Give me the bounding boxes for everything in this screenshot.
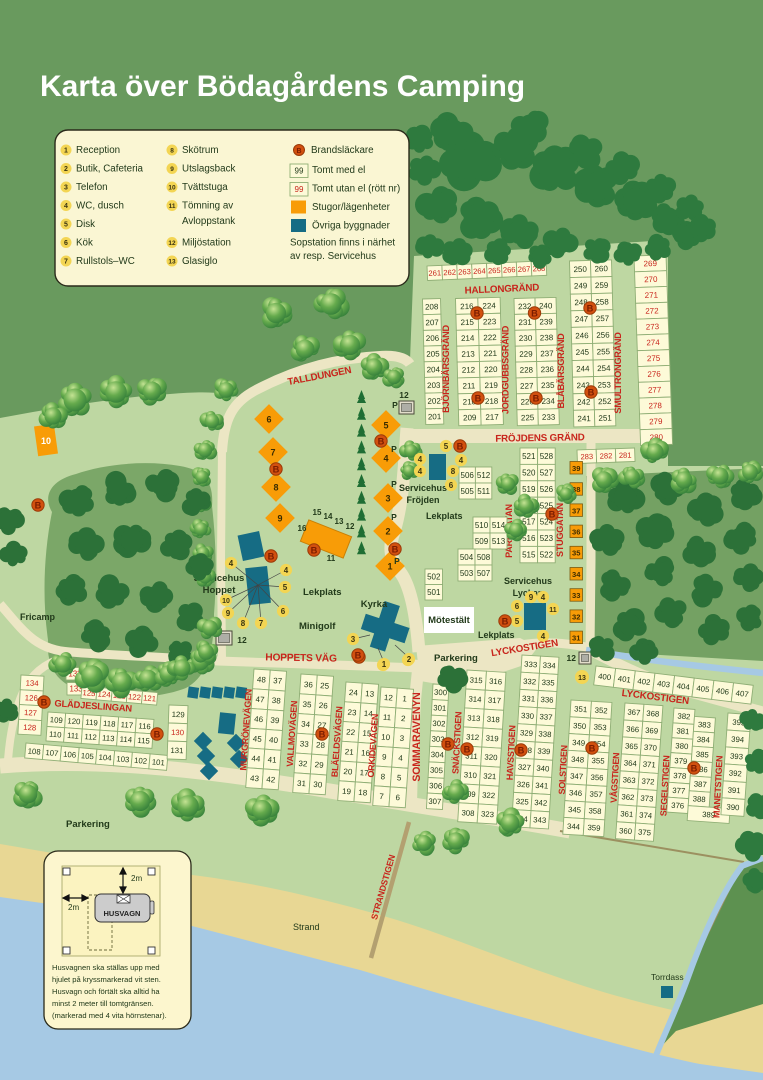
svg-text:10: 10 [41, 436, 51, 446]
svg-text:233: 233 [542, 413, 556, 422]
svg-text:347: 347 [570, 772, 584, 782]
svg-text:99: 99 [295, 167, 304, 176]
svg-text:228: 228 [520, 365, 534, 374]
svg-text:SOMMARAVENYN: SOMMARAVENYN [411, 692, 423, 781]
svg-text:Servicehus: Servicehus [399, 483, 447, 493]
svg-text:32: 32 [298, 759, 308, 769]
svg-text:8: 8 [170, 148, 174, 155]
svg-text:33: 33 [300, 739, 310, 749]
svg-text:313: 313 [467, 713, 481, 723]
svg-text:251: 251 [598, 414, 612, 423]
svg-text:107: 107 [45, 748, 59, 758]
svg-text:511: 511 [477, 487, 490, 496]
svg-text:Avloppstank: Avloppstank [182, 216, 235, 227]
svg-text:372: 372 [641, 777, 655, 787]
svg-text:Stugor/lägenheter: Stugor/lägenheter [312, 202, 391, 213]
svg-text:301: 301 [433, 703, 446, 713]
svg-text:283: 283 [580, 452, 593, 461]
svg-text:131: 131 [170, 746, 183, 755]
svg-text:329: 329 [520, 728, 534, 738]
svg-text:355: 355 [591, 756, 605, 766]
svg-text:5: 5 [444, 442, 449, 451]
svg-text:Minigolf: Minigolf [299, 621, 336, 632]
svg-text:11: 11 [383, 713, 392, 723]
svg-text:371: 371 [642, 760, 656, 770]
svg-text:35: 35 [572, 549, 581, 558]
svg-text:31: 31 [297, 779, 307, 789]
svg-text:401: 401 [617, 674, 631, 685]
svg-text:514: 514 [492, 521, 506, 530]
svg-text:3: 3 [64, 185, 68, 192]
svg-text:336: 336 [540, 695, 554, 705]
svg-text:46: 46 [254, 715, 264, 725]
svg-text:502: 502 [427, 573, 441, 582]
svg-text:323: 323 [481, 809, 495, 819]
svg-text:335: 335 [541, 678, 555, 688]
svg-text:117: 117 [120, 720, 133, 730]
svg-text:229: 229 [519, 350, 533, 359]
svg-text:106: 106 [63, 750, 77, 760]
svg-text:405: 405 [696, 684, 711, 695]
svg-text:240: 240 [539, 301, 553, 310]
svg-text:22: 22 [346, 728, 356, 738]
svg-text:43: 43 [250, 774, 260, 784]
svg-text:37: 37 [273, 676, 283, 686]
svg-text:37: 37 [572, 506, 580, 515]
svg-text:114: 114 [119, 735, 133, 745]
svg-text:B: B [464, 744, 471, 754]
svg-text:220: 220 [484, 365, 498, 374]
svg-text:501: 501 [427, 588, 441, 597]
svg-text:Glasiglo: Glasiglo [182, 256, 218, 267]
svg-text:279: 279 [649, 417, 663, 426]
svg-text:109: 109 [49, 715, 63, 725]
svg-text:270: 270 [644, 275, 658, 284]
svg-text:5: 5 [283, 583, 288, 592]
svg-text:317: 317 [488, 696, 502, 706]
svg-text:6: 6 [281, 607, 286, 616]
svg-text:271: 271 [645, 291, 659, 300]
svg-text:307: 307 [428, 797, 441, 807]
svg-text:254: 254 [597, 364, 611, 373]
svg-text:348: 348 [571, 755, 585, 765]
svg-text:319: 319 [485, 734, 499, 744]
svg-text:305: 305 [430, 766, 444, 776]
svg-text:Torrdass: Torrdass [651, 972, 684, 982]
svg-text:26: 26 [319, 701, 329, 711]
svg-text:343: 343 [533, 815, 547, 825]
svg-text:400: 400 [598, 672, 613, 683]
svg-text:Skötrum: Skötrum [182, 145, 218, 156]
svg-text:12: 12 [399, 390, 409, 400]
svg-text:334: 334 [542, 661, 556, 671]
svg-text:526: 526 [540, 485, 554, 494]
svg-text:Husvagn och förtält ska alltid: Husvagn och förtält ska alltid ha [52, 987, 160, 996]
svg-text:7: 7 [64, 259, 68, 266]
svg-text:504: 504 [460, 553, 474, 562]
svg-text:18: 18 [358, 788, 368, 798]
svg-text:Parkering: Parkering [66, 819, 110, 830]
svg-text:312: 312 [466, 732, 480, 742]
svg-text:128: 128 [23, 723, 36, 733]
svg-text:374: 374 [639, 811, 653, 821]
svg-text:306: 306 [429, 781, 442, 791]
svg-text:41: 41 [267, 755, 277, 765]
svg-text:224: 224 [482, 301, 496, 310]
svg-text:Sopstation finns i närhet: Sopstation finns i närhet [290, 238, 395, 249]
svg-text:261: 261 [428, 268, 441, 278]
svg-text:205: 205 [426, 349, 440, 358]
svg-text:315: 315 [469, 675, 483, 685]
svg-text:215: 215 [460, 318, 474, 327]
svg-text:407: 407 [735, 689, 749, 700]
svg-text:Fricamp: Fricamp [20, 612, 56, 622]
svg-text:376: 376 [671, 801, 685, 811]
svg-text:15: 15 [313, 508, 322, 517]
svg-text:16: 16 [298, 524, 307, 533]
svg-text:9: 9 [277, 513, 282, 523]
svg-text:353: 353 [593, 722, 607, 732]
svg-text:272: 272 [645, 306, 659, 315]
svg-text:8: 8 [273, 482, 278, 492]
svg-text:P: P [394, 556, 400, 566]
svg-text:Tomt med el: Tomt med el [312, 165, 365, 176]
svg-text:34: 34 [572, 570, 581, 579]
svg-text:113: 113 [102, 733, 115, 743]
svg-text:11: 11 [327, 554, 336, 563]
svg-text:20: 20 [343, 767, 353, 777]
svg-text:249: 249 [574, 281, 588, 290]
svg-text:244: 244 [576, 364, 590, 373]
svg-text:B: B [378, 436, 385, 446]
svg-text:257: 257 [596, 314, 610, 323]
svg-text:384: 384 [697, 735, 711, 745]
svg-text:230: 230 [519, 334, 533, 343]
svg-text:2m: 2m [68, 903, 79, 912]
svg-text:4: 4 [418, 455, 423, 464]
svg-text:32: 32 [572, 612, 580, 621]
svg-text:218: 218 [485, 397, 499, 406]
svg-text:28: 28 [316, 740, 326, 750]
svg-text:31: 31 [572, 634, 581, 643]
svg-text:12: 12 [567, 653, 577, 663]
svg-text:104: 104 [98, 753, 112, 763]
svg-text:24: 24 [349, 688, 359, 698]
svg-text:13: 13 [335, 517, 344, 526]
svg-text:B: B [691, 763, 698, 773]
svg-text:383: 383 [698, 720, 712, 730]
svg-text:358: 358 [588, 806, 602, 816]
svg-text:4: 4 [383, 453, 388, 463]
svg-text:Disk: Disk [76, 219, 95, 230]
svg-text:509: 509 [475, 537, 489, 546]
svg-text:B: B [296, 148, 301, 155]
svg-text:B: B [311, 545, 318, 555]
svg-text:2: 2 [64, 166, 68, 173]
svg-text:39: 39 [270, 716, 280, 726]
svg-text:394: 394 [731, 735, 745, 745]
svg-text:6: 6 [266, 414, 271, 424]
svg-text:378: 378 [673, 771, 687, 781]
svg-text:321: 321 [483, 772, 497, 782]
svg-text:214: 214 [461, 334, 475, 343]
svg-text:B: B [587, 303, 594, 313]
svg-text:B: B [445, 739, 452, 749]
svg-text:Fröjden: Fröjden [407, 495, 440, 505]
svg-text:30: 30 [313, 780, 323, 790]
svg-text:118: 118 [103, 719, 116, 729]
svg-text:Rullstols–WC: Rullstols–WC [76, 256, 135, 267]
svg-text:B: B [35, 500, 42, 510]
svg-text:406: 406 [716, 686, 730, 697]
svg-text:Reception: Reception [76, 145, 120, 156]
svg-text:FRÖJDENS GRÄND: FRÖJDENS GRÄND [495, 432, 584, 445]
svg-text:245: 245 [576, 348, 590, 357]
svg-text:212: 212 [462, 365, 476, 374]
svg-text:1: 1 [64, 148, 68, 155]
svg-text:6: 6 [449, 481, 454, 490]
svg-text:5: 5 [383, 420, 388, 430]
svg-text:av resp. Servicehus: av resp. Servicehus [290, 251, 376, 262]
svg-text:Brandsläckare: Brandsläckare [311, 145, 374, 156]
svg-text:103: 103 [116, 754, 130, 764]
svg-text:33: 33 [572, 591, 580, 600]
svg-text:508: 508 [477, 553, 491, 562]
svg-text:B: B [273, 464, 280, 474]
svg-text:304: 304 [431, 750, 445, 760]
svg-text:B: B [533, 393, 540, 403]
svg-text:121: 121 [143, 693, 157, 703]
svg-text:10: 10 [168, 185, 176, 192]
svg-text:356: 356 [590, 773, 604, 783]
svg-text:510: 510 [475, 521, 489, 530]
svg-text:Strand: Strand [293, 922, 320, 932]
svg-text:B: B [268, 551, 275, 561]
svg-text:47: 47 [255, 695, 265, 705]
svg-text:129: 129 [172, 710, 185, 719]
svg-text:2: 2 [385, 526, 390, 536]
svg-text:338: 338 [538, 729, 552, 739]
svg-text:12: 12 [237, 635, 247, 645]
svg-text:110: 110 [49, 730, 63, 740]
svg-text:366: 366 [626, 724, 640, 734]
svg-text:Karta över Bödagårdens Camping: Karta över Bödagårdens Camping [40, 70, 525, 103]
svg-text:234: 234 [541, 397, 555, 406]
svg-text:390: 390 [726, 802, 740, 812]
svg-text:231: 231 [518, 318, 532, 327]
svg-text:115: 115 [137, 736, 151, 746]
svg-text:528: 528 [540, 452, 554, 461]
svg-text:351: 351 [574, 704, 588, 714]
svg-text:327: 327 [518, 763, 532, 773]
svg-text:211: 211 [462, 381, 476, 390]
svg-text:7: 7 [270, 447, 275, 457]
svg-text:4: 4 [284, 566, 289, 575]
svg-text:370: 370 [644, 743, 658, 753]
svg-text:326: 326 [517, 780, 531, 790]
svg-text:B: B [392, 544, 399, 554]
svg-text:250: 250 [573, 265, 587, 274]
svg-text:13: 13 [365, 689, 375, 699]
svg-text:242: 242 [577, 397, 591, 406]
svg-text:P: P [391, 479, 397, 489]
svg-text:102: 102 [134, 756, 148, 766]
svg-text:382: 382 [677, 712, 691, 722]
svg-text:36: 36 [304, 680, 314, 690]
svg-text:B: B [319, 729, 326, 739]
svg-text:316: 316 [489, 677, 503, 687]
svg-text:Kök: Kök [76, 238, 93, 249]
svg-text:WC, dusch: WC, dusch [76, 201, 124, 212]
svg-text:330: 330 [521, 711, 535, 721]
svg-text:3: 3 [385, 493, 390, 503]
svg-text:325: 325 [516, 797, 530, 807]
svg-text:503: 503 [460, 569, 474, 578]
svg-text:403: 403 [657, 679, 671, 690]
svg-text:6: 6 [515, 602, 520, 611]
svg-text:25: 25 [320, 681, 330, 691]
svg-text:122: 122 [128, 692, 142, 702]
svg-text:40: 40 [269, 735, 279, 745]
svg-text:235: 235 [541, 381, 555, 390]
svg-text:521: 521 [522, 452, 536, 461]
svg-text:(markerad med 4 vita hörnstena: (markerad med 4 vita hörnstenar). [52, 1011, 167, 1020]
svg-text:Parkering: Parkering [434, 653, 478, 664]
svg-text:369: 369 [645, 726, 659, 736]
svg-text:262: 262 [443, 268, 456, 278]
svg-text:252: 252 [598, 397, 612, 406]
svg-text:320: 320 [484, 753, 498, 763]
svg-text:361: 361 [620, 809, 634, 819]
svg-text:310: 310 [464, 770, 478, 780]
svg-text:42: 42 [266, 775, 276, 785]
svg-text:34: 34 [301, 720, 311, 730]
svg-text:507: 507 [477, 569, 491, 578]
svg-text:1: 1 [382, 660, 387, 669]
svg-text:BJÖRNBÄRSGRÄND: BJÖRNBÄRSGRÄND [441, 324, 451, 412]
svg-text:Utslagsback: Utslagsback [182, 164, 235, 175]
svg-text:201: 201 [428, 412, 442, 421]
svg-text:345: 345 [568, 805, 582, 815]
svg-text:308: 308 [461, 808, 475, 818]
svg-text:126: 126 [25, 693, 38, 703]
svg-text:273: 273 [646, 322, 660, 331]
svg-text:Telefon: Telefon [76, 182, 108, 193]
svg-text:267: 267 [518, 264, 531, 274]
svg-text:38: 38 [272, 696, 282, 706]
svg-text:P: P [392, 400, 398, 410]
svg-text:247: 247 [575, 314, 589, 323]
svg-text:204: 204 [427, 365, 441, 374]
svg-text:23: 23 [347, 708, 357, 718]
svg-text:Kyrka: Kyrka [361, 599, 388, 610]
svg-text:239: 239 [539, 317, 553, 326]
svg-text:101: 101 [151, 757, 165, 767]
svg-text:10: 10 [222, 598, 230, 605]
svg-text:Lekplats: Lekplats [426, 511, 463, 521]
svg-text:Övriga byggnader: Övriga byggnader [312, 221, 391, 232]
svg-text:404: 404 [676, 681, 691, 692]
svg-text:203: 203 [427, 381, 441, 390]
svg-text:275: 275 [647, 354, 661, 363]
svg-text:HOPPETS VÄG: HOPPETS VÄG [265, 650, 337, 664]
svg-text:119: 119 [85, 718, 98, 728]
svg-text:362: 362 [621, 792, 635, 802]
svg-text:219: 219 [484, 381, 498, 390]
svg-text:340: 340 [536, 764, 550, 774]
svg-text:241: 241 [577, 414, 591, 423]
svg-text:246: 246 [575, 331, 589, 340]
svg-text:208: 208 [425, 302, 439, 311]
svg-text:44: 44 [251, 754, 261, 764]
svg-text:5: 5 [515, 617, 520, 626]
svg-text:282: 282 [600, 451, 613, 460]
svg-text:21: 21 [345, 747, 355, 757]
svg-text:350: 350 [573, 721, 587, 731]
svg-text:263: 263 [458, 267, 471, 277]
svg-text:B: B [457, 441, 464, 451]
svg-text:237: 237 [540, 349, 554, 358]
svg-text:B: B [355, 650, 362, 660]
svg-text:520: 520 [522, 468, 536, 477]
svg-text:Miljöstation: Miljöstation [182, 238, 231, 249]
svg-text:227: 227 [520, 381, 534, 390]
svg-text:365: 365 [625, 741, 639, 751]
svg-text:238: 238 [540, 333, 554, 342]
svg-text:4: 4 [418, 467, 423, 476]
svg-text:12: 12 [168, 240, 176, 247]
svg-text:B: B [531, 308, 538, 318]
svg-text:385: 385 [696, 750, 710, 760]
svg-text:120: 120 [67, 716, 81, 726]
svg-text:332: 332 [523, 677, 537, 687]
svg-text:380: 380 [675, 741, 689, 751]
svg-text:6: 6 [64, 240, 68, 247]
svg-text:8: 8 [451, 467, 456, 476]
svg-text:11: 11 [169, 203, 176, 210]
svg-text:P: P [391, 512, 397, 522]
svg-text:274: 274 [646, 338, 660, 347]
svg-text:Lekplats: Lekplats [303, 587, 342, 598]
svg-text:10: 10 [381, 733, 391, 743]
svg-text:1: 1 [387, 561, 392, 571]
svg-text:375: 375 [638, 828, 652, 838]
svg-text:B: B [475, 393, 482, 403]
svg-text:Servicehus: Servicehus [504, 576, 552, 586]
svg-text:9: 9 [529, 593, 534, 602]
svg-text:39: 39 [572, 464, 580, 473]
svg-text:260: 260 [594, 264, 608, 273]
svg-text:134: 134 [25, 678, 39, 688]
svg-text:346: 346 [569, 788, 583, 798]
svg-text:513: 513 [492, 537, 506, 546]
svg-text:302: 302 [432, 719, 445, 729]
svg-text:JORDGUBBSGRÄND: JORDGUBBSGRÄND [501, 325, 511, 414]
svg-text:344: 344 [567, 822, 581, 832]
svg-text:359: 359 [587, 823, 601, 833]
svg-text:4: 4 [64, 203, 68, 210]
svg-text:P: P [391, 444, 397, 454]
svg-text:29: 29 [314, 760, 324, 770]
svg-text:hjulet på kryssmarkerad vit st: hjulet på kryssmarkerad vit sten. [52, 975, 161, 984]
svg-text:392: 392 [728, 769, 742, 779]
svg-text:357: 357 [589, 790, 603, 800]
svg-text:2: 2 [407, 655, 412, 664]
svg-text:19: 19 [342, 787, 352, 797]
svg-text:9: 9 [226, 609, 231, 618]
svg-text:Husvagnen ska ställas upp med: Husvagnen ska ställas upp med [52, 963, 160, 972]
svg-text:B: B [41, 697, 48, 707]
